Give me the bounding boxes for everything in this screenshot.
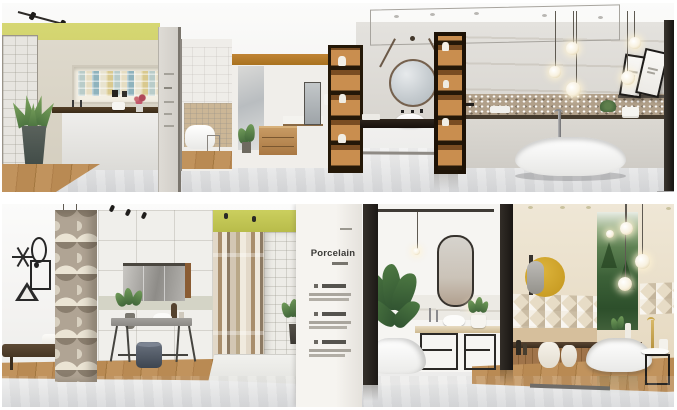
fabric-basket-2 bbox=[561, 345, 577, 367]
sign-subtitle-mark bbox=[332, 262, 348, 265]
amber-band bbox=[232, 54, 330, 65]
pendant-globe-5 bbox=[621, 71, 635, 85]
dark-column-right bbox=[664, 20, 674, 191]
porcelain-sign-column: Porcelain bbox=[296, 204, 362, 407]
decor-vase-2 bbox=[339, 94, 346, 103]
small-bulb bbox=[413, 248, 420, 255]
bench-leg bbox=[10, 357, 13, 370]
wall-spout-mid bbox=[420, 109, 423, 113]
strap-hung-round-mirror bbox=[389, 59, 437, 107]
striped-tile-wall bbox=[213, 232, 264, 371]
dark-pillar-mid bbox=[363, 204, 378, 385]
niche-object-dark-2 bbox=[122, 91, 127, 97]
wall-mirror bbox=[304, 82, 321, 125]
side-table bbox=[207, 135, 220, 152]
patterned-arc-tile-column bbox=[55, 210, 97, 382]
pendant-globe-2 bbox=[549, 66, 561, 78]
metal-frame-stool-2 bbox=[464, 334, 496, 370]
doorway-wood-floor bbox=[180, 151, 232, 169]
dark-bottle bbox=[516, 340, 521, 355]
page-canvas: Porcelain bbox=[0, 0, 677, 410]
dark-bottle-2 bbox=[523, 343, 527, 355]
column-reflection bbox=[657, 191, 674, 192]
pillar-reflection-2 bbox=[500, 370, 513, 384]
white-plant-pot bbox=[471, 315, 486, 328]
wood-drawer-cabinet bbox=[259, 126, 297, 155]
porcelain-sign-title: Porcelain bbox=[304, 248, 362, 259]
door-frame bbox=[180, 39, 182, 171]
ceiling-recess bbox=[370, 4, 620, 45]
capsule-reflector bbox=[527, 261, 544, 294]
towel bbox=[112, 102, 125, 110]
pillar-reflection bbox=[363, 385, 378, 401]
sign-top-dash bbox=[340, 228, 352, 230]
display-counter bbox=[62, 113, 162, 170]
illuminated-shelf-left bbox=[328, 45, 363, 173]
decor-vase-4 bbox=[442, 42, 449, 51]
pendant-globe-4 bbox=[629, 37, 641, 49]
pendant-cable bbox=[573, 11, 574, 45]
niche-object-dark bbox=[112, 90, 118, 97]
mirror-hook bbox=[410, 36, 415, 41]
mosaic-display-niche bbox=[72, 65, 164, 104]
showroom-photo-bottom: Porcelain bbox=[2, 204, 674, 407]
counter-tap-2 bbox=[436, 310, 438, 322]
decor-vase bbox=[338, 56, 346, 66]
freestanding-bathtub-right bbox=[586, 338, 652, 372]
ledge-bottle bbox=[625, 323, 631, 339]
pendant-wire-6 bbox=[625, 204, 626, 278]
capsule-mirror bbox=[437, 235, 474, 307]
faucet-handle bbox=[401, 110, 404, 113]
dark-pillar-right bbox=[500, 204, 513, 370]
mural-reflection bbox=[597, 376, 638, 394]
pendant-globe-7 bbox=[620, 222, 633, 235]
stacked-books bbox=[362, 114, 380, 120]
counter-faucet-2 bbox=[80, 100, 82, 107]
pendant-wire-3 bbox=[417, 212, 418, 250]
plant-pot-small bbox=[242, 142, 251, 153]
decor-vase-3 bbox=[338, 134, 346, 143]
shelf-plant bbox=[600, 100, 616, 112]
showroom-photo-top bbox=[2, 3, 674, 192]
pendant-cable-2 bbox=[555, 11, 556, 69]
pendant-cable-5 bbox=[627, 11, 628, 73]
counter-faucet bbox=[72, 100, 74, 107]
diamond-relief-band-right bbox=[640, 282, 674, 314]
pendant-cable-4 bbox=[634, 11, 635, 39]
square-wall-art bbox=[30, 260, 51, 290]
pendant-globe-3 bbox=[566, 82, 581, 97]
freestanding-bathtub bbox=[515, 137, 626, 176]
vanity-counter-mid bbox=[415, 326, 500, 333]
gold-faucet-spout bbox=[647, 317, 655, 323]
pendant-globe bbox=[566, 42, 579, 55]
faucet-spout bbox=[554, 109, 563, 115]
counter-tap bbox=[429, 308, 431, 322]
pendant-globe-6 bbox=[606, 230, 614, 238]
doorway-display-room bbox=[180, 39, 232, 171]
pendant-wire-5 bbox=[642, 204, 643, 256]
flower-vase bbox=[136, 104, 143, 112]
fabric-basket bbox=[538, 342, 560, 368]
diamond-relief-band-left bbox=[513, 294, 597, 330]
pendant-wire-4 bbox=[626, 204, 627, 224]
illuminated-shelf-tall bbox=[434, 32, 466, 174]
shelf-reflection bbox=[434, 166, 458, 190]
decor-tile-strip bbox=[78, 71, 158, 96]
tan-wall-lower bbox=[513, 328, 597, 343]
mirror-wood-strip bbox=[185, 263, 191, 298]
faucet-handle-2 bbox=[411, 110, 414, 113]
pendant-globe-8 bbox=[635, 254, 650, 269]
signage-column bbox=[158, 27, 181, 192]
towel-tray bbox=[490, 106, 510, 113]
pendant-globe-9 bbox=[618, 277, 632, 291]
ceiling-trim bbox=[378, 209, 494, 212]
decor-vase-5 bbox=[443, 80, 449, 88]
amber-display-room bbox=[232, 54, 330, 168]
folded-towels bbox=[622, 107, 639, 116]
round-waste-bin bbox=[136, 342, 162, 368]
console-table-top bbox=[111, 318, 192, 326]
decor-vase-6 bbox=[442, 118, 449, 126]
gold-faucet bbox=[651, 320, 654, 350]
